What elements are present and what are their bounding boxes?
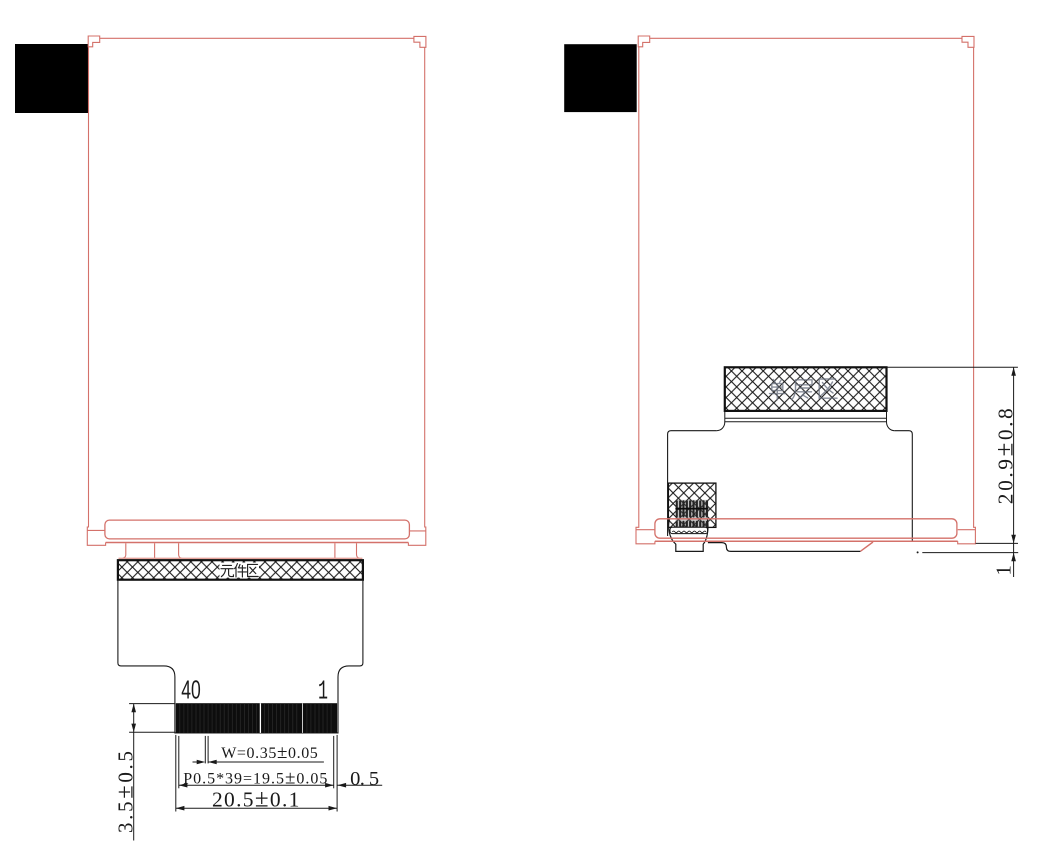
svg-text:1: 1: [992, 565, 1016, 576]
svg-text:40: 40: [181, 674, 201, 704]
svg-text:W=0.35±0.05: W=0.35±0.05: [221, 742, 318, 763]
svg-text:20.9±0.8: 20.9±0.8: [992, 408, 1019, 504]
svg-text:3.5±0.5: 3.5±0.5: [111, 751, 138, 833]
svg-text:0. 5: 0. 5: [350, 768, 379, 790]
svg-text:1: 1: [318, 677, 328, 707]
svg-text:20.5±0.1: 20.5±0.1: [212, 786, 299, 813]
